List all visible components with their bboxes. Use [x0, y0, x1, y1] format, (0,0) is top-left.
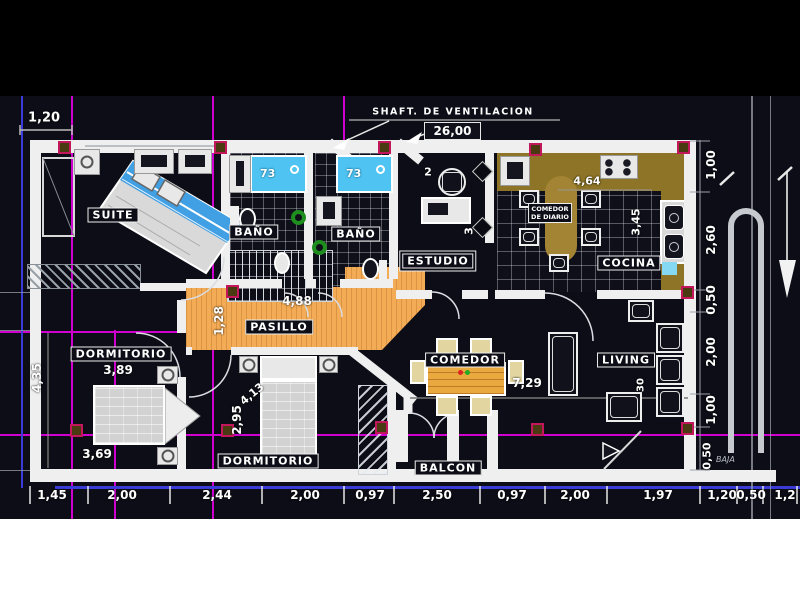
bidet1-symbol [274, 252, 290, 274]
dim-right-0: 1,00 [704, 150, 718, 180]
shaft-label: SHAFT. DE VENTILACION [372, 107, 534, 118]
stair-tick-2 [778, 167, 792, 180]
column-marker [58, 141, 71, 154]
room-label-comedor-diario: COMEDOR DE DIARIO [528, 203, 572, 223]
shaft-chamfer-wall-2 [398, 142, 421, 161]
room-label-bano2: BAÑO [331, 227, 380, 242]
study-chair [438, 168, 466, 196]
room-label-cocina: COCINA [597, 256, 660, 271]
room-label-dormitorio2: DORMITORIO [218, 454, 319, 469]
living-armchair [628, 300, 654, 322]
wall-chamfer-hall [350, 350, 415, 401]
dim-dorm1-upper: 3,89 [103, 363, 133, 377]
dorm1-nightstand-1 [157, 366, 178, 384]
door-arc-bath2 [318, 293, 342, 317]
dim-pasillo-width: 1,28 [212, 306, 226, 336]
column-marker [214, 141, 227, 154]
shaft-dim-box: 26,00 [424, 122, 481, 140]
tub2-drain-icon [376, 165, 385, 174]
toilet2-bowl [362, 258, 379, 280]
coffee-table [606, 392, 642, 422]
door-arc-balcony-right [434, 413, 459, 438]
dim-bottom-4: 0,97 [355, 488, 385, 502]
column-marker [681, 422, 694, 435]
door-arc-balcony-left [409, 413, 434, 438]
dim-dorm1-lower: 3,69 [82, 447, 112, 461]
dim-bottom-1: 2,00 [107, 488, 137, 502]
comedor-diario-line1: COMEDOR [531, 205, 569, 213]
dining-chair-4 [470, 396, 492, 416]
dim-estudio-w: 2 [424, 166, 432, 179]
column-marker [677, 141, 690, 154]
stair-tick-1 [720, 172, 734, 185]
suite-nightstand [74, 149, 100, 175]
bottom-chain-ticks [30, 486, 797, 504]
shaft-arrowhead-2 [406, 132, 422, 144]
dorm1-nightstand-2 [157, 447, 178, 465]
dim-right-4: 1,00 [704, 395, 718, 425]
dim-bottom-11: 1,2 [774, 488, 795, 502]
comedor-diario-line2: DE DIARIO [531, 213, 569, 221]
column-marker [226, 285, 239, 298]
tub1-dim: 73 [260, 167, 275, 180]
dim-bottom-9: 1,20 [707, 488, 737, 502]
room-label-living: LIVING [597, 353, 655, 368]
suite-dresser-2 [178, 149, 212, 174]
stair-down-arrow [779, 260, 796, 298]
room-label-suite: SUITE [88, 208, 139, 223]
toilet2-tank [379, 260, 387, 282]
linework-overlay [0, 0, 800, 600]
dim-pasillo-length: 4,88 [282, 294, 312, 308]
room-label-comedor: COMEDOR [425, 353, 505, 368]
dim-cocina-width: 4,64 [573, 175, 600, 188]
column-marker [529, 143, 542, 156]
stair-handrail [731, 211, 761, 453]
dorm2-bed [260, 380, 317, 458]
cad-floor-plan: 73 73 [0, 0, 800, 600]
room-label-bano1: BAÑO [229, 225, 278, 240]
bathtub-symbol-1: 73 [250, 155, 307, 193]
sideboard-cabinet [548, 332, 578, 396]
dim-bottom-6: 0,97 [497, 488, 527, 502]
dim-cocina-depth: 3,45 [630, 208, 643, 235]
tub2-dim: 73 [346, 167, 361, 180]
tub1-drain-icon [290, 165, 299, 174]
dim-right-3: 2,00 [704, 337, 718, 367]
dining-chair-5 [410, 360, 426, 384]
sofa-cushion-3 [656, 387, 684, 417]
dim-bottom-10: 0,50 [736, 488, 766, 502]
dim-living-h: 30 [636, 378, 647, 392]
door-arc-dorm2 [189, 355, 231, 397]
table-decor-red [458, 370, 463, 375]
column-marker [375, 421, 388, 434]
room-label-estudio: ESTUDIO [402, 254, 473, 269]
bath2-vanity [316, 196, 342, 226]
dim-left-height: 4,35 [30, 363, 44, 393]
suite-closet-diag [43, 158, 74, 236]
table-decor-green [465, 370, 470, 375]
column-marker [378, 141, 391, 154]
column-marker [70, 424, 83, 437]
room-label-dormitorio1: DORMITORIO [71, 347, 172, 362]
dim-right-2: 0,50 [704, 285, 718, 315]
dim-bottom-7: 2,00 [560, 488, 590, 502]
study-computer [428, 203, 448, 215]
dorm2-headboard [260, 356, 317, 380]
dim-bottom-8: 1,97 [643, 488, 673, 502]
room-label-balcon: BALCON [415, 461, 482, 476]
column-marker [681, 286, 694, 299]
dim-dorm2-height: 2,95 [230, 405, 244, 435]
dorm1-bed [93, 385, 165, 445]
dorm2-nightstand-2 [319, 356, 338, 373]
sofa-cushion-2 [656, 355, 684, 385]
dim-bottom-3: 2,00 [290, 488, 320, 502]
dorm2-nightstand-1 [239, 356, 258, 373]
bathtub-symbol-2: 73 [336, 155, 393, 193]
drain2-icon [312, 240, 327, 255]
dim-bottom-5: 2,50 [422, 488, 452, 502]
door-arc-study [432, 292, 459, 319]
bath1-vanity [229, 155, 251, 193]
scale-note: 1,20 [28, 111, 60, 126]
dim-comedor-length: 7,29 [512, 376, 542, 390]
dim-stair: 0,50 [701, 442, 714, 469]
room-label-pasillo: PASILLO [245, 320, 313, 335]
stair-baja-note: BAJA [716, 455, 735, 464]
column-marker [531, 423, 544, 436]
drain1-icon [291, 210, 306, 225]
dim-estudio-h: 3 [463, 227, 476, 235]
dim-bottom-2: 2,44 [202, 488, 232, 502]
suite-dresser-1 [134, 149, 174, 174]
sofa-cushion-1 [656, 323, 684, 353]
dining-chair-3 [436, 396, 458, 416]
dim-right-1: 2,60 [704, 225, 718, 255]
dim-bottom-0: 1,45 [37, 488, 67, 502]
